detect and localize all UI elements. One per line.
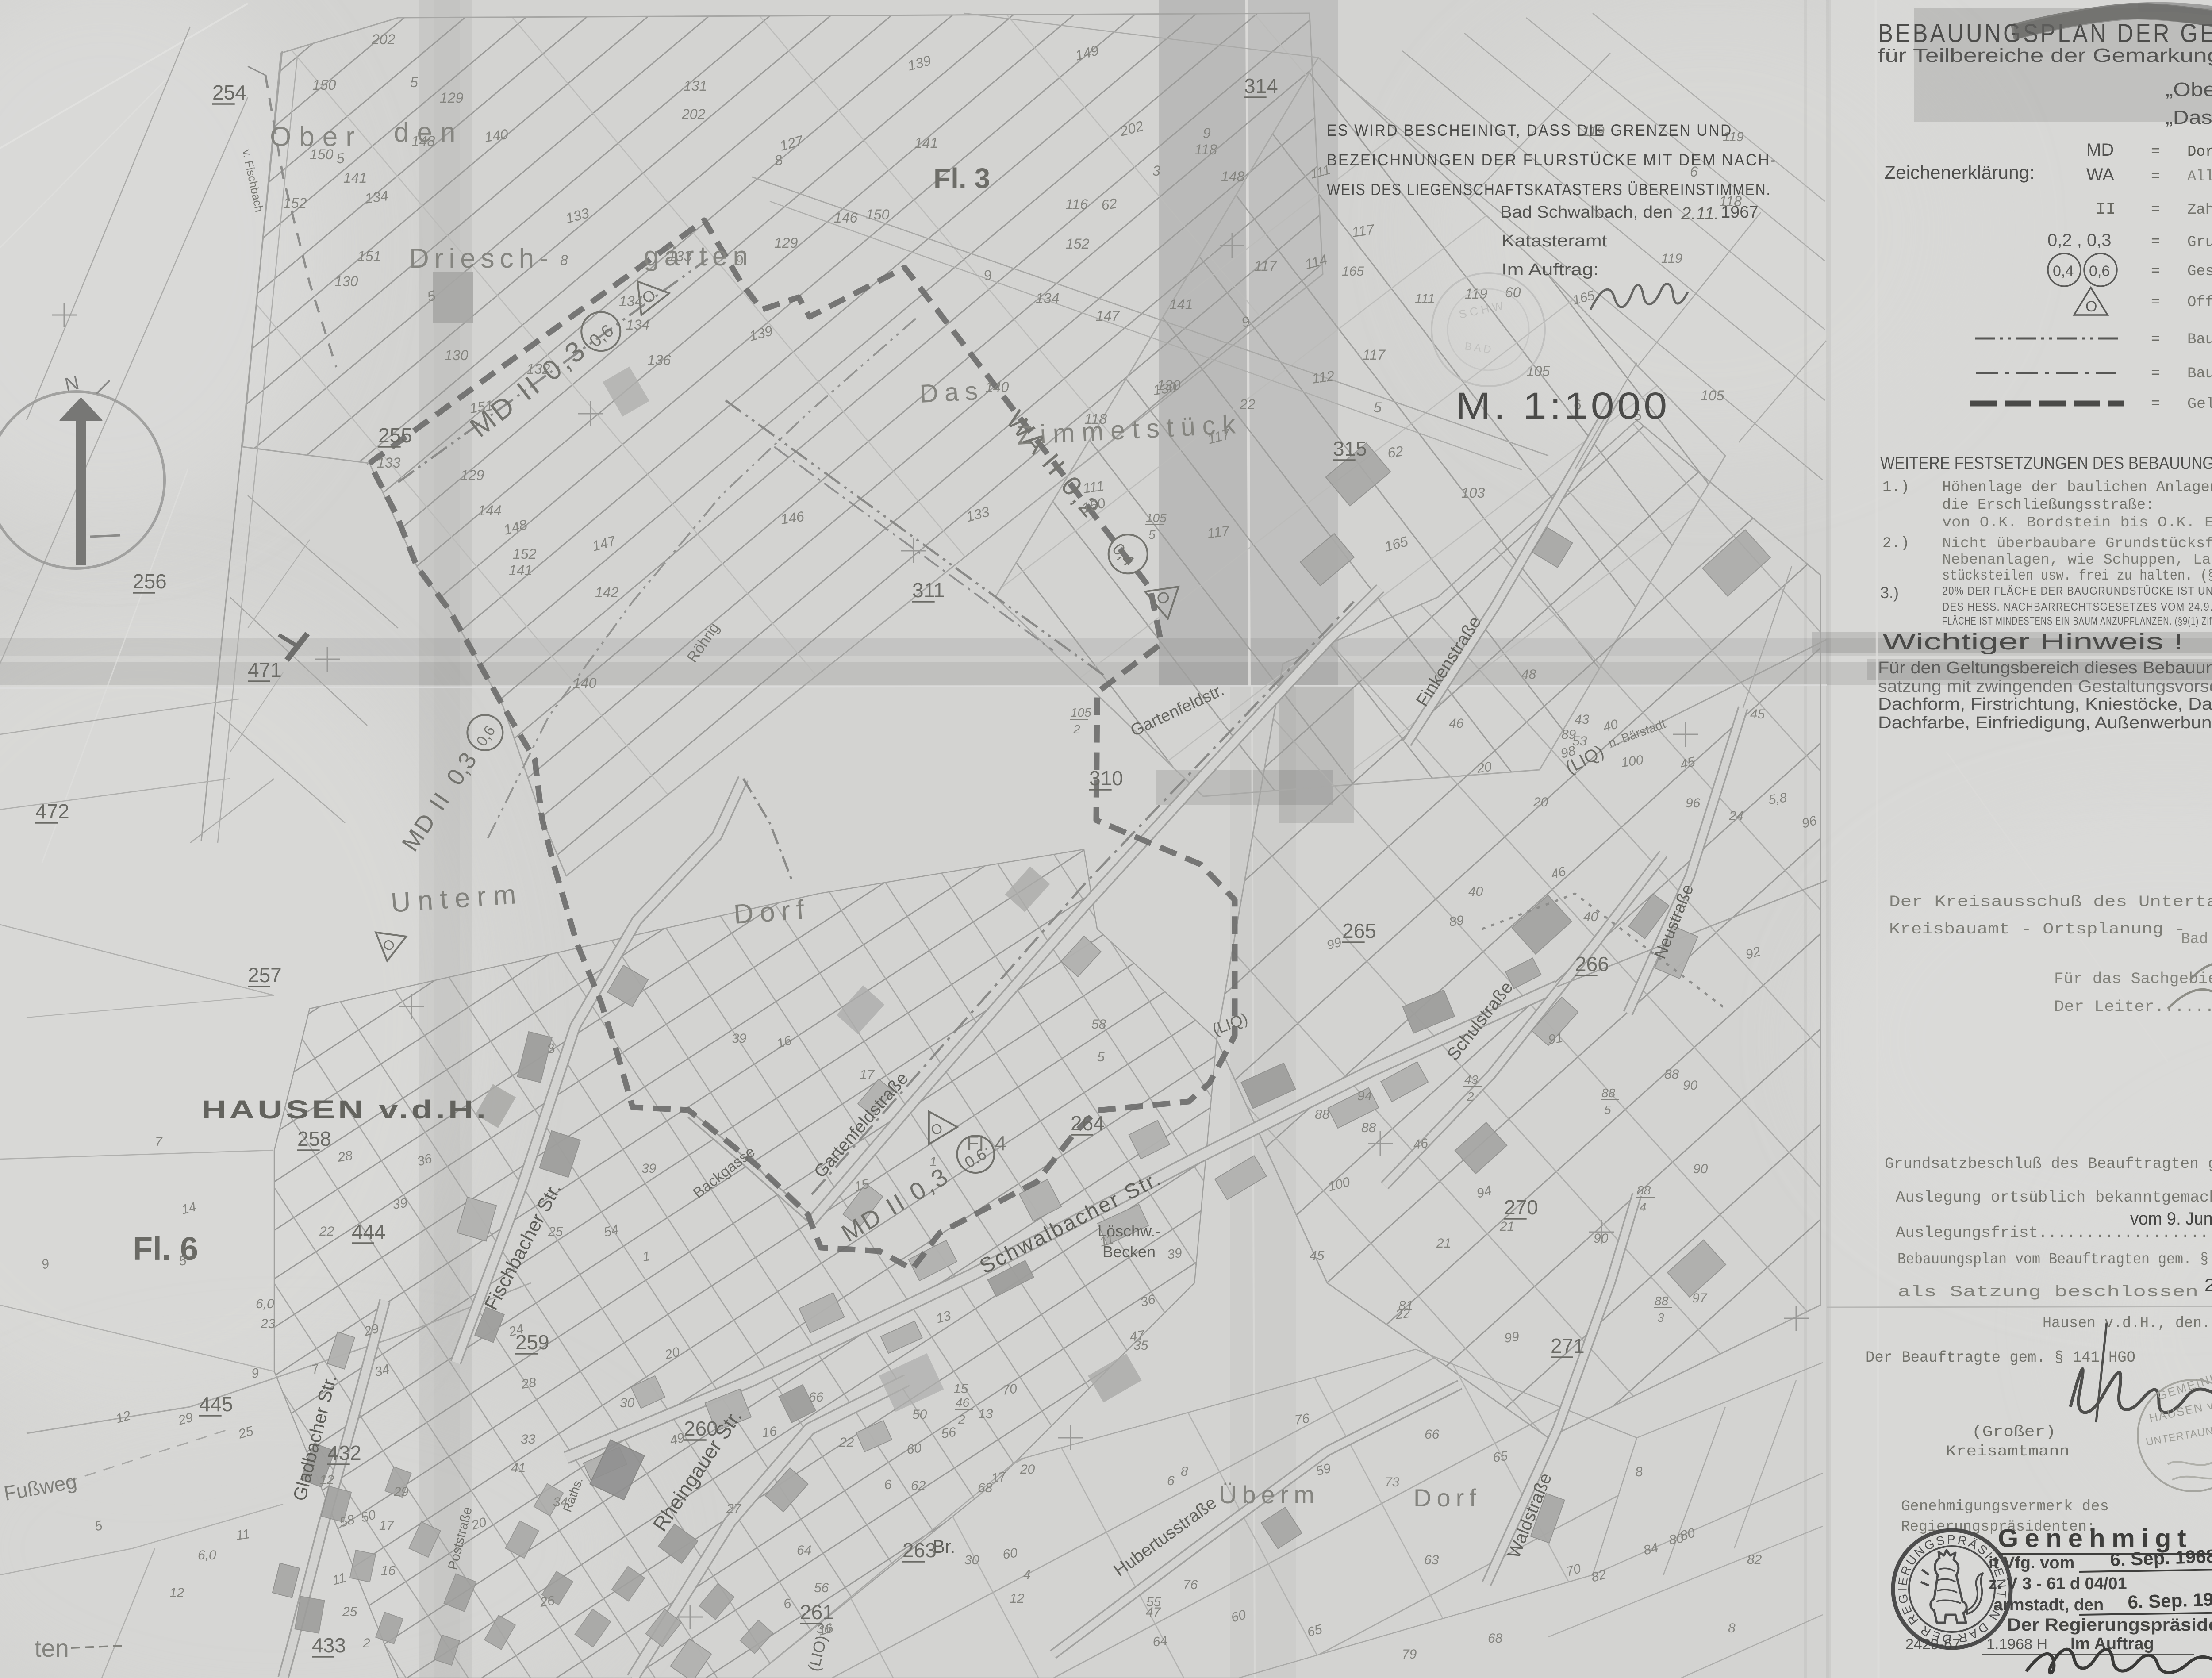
svg-text:MD: MD <box>2086 140 2114 160</box>
svg-text:Dorf: Dorf <box>1413 1484 1482 1512</box>
svg-text:6,0: 6,0 <box>256 1297 274 1311</box>
svg-text:Bad Schwalbach, den: Bad Schwalbach, den <box>1500 203 1673 222</box>
svg-text:3: 3 <box>1152 163 1160 179</box>
svg-text:255: 255 <box>378 424 412 447</box>
svg-text:202: 202 <box>681 106 706 122</box>
svg-text:30: 30 <box>620 1396 635 1410</box>
svg-text:Dorfgebiet: Dorfgebiet <box>2187 144 2212 161</box>
svg-text:=: = <box>2151 396 2160 413</box>
svg-text:die Erschließungsstraße:: die Erschließungsstraße: <box>1942 497 2154 513</box>
svg-text:Im Auftrag: Im Auftrag <box>2070 1635 2154 1653</box>
svg-text:76: 76 <box>1294 1411 1310 1428</box>
svg-text:66: 66 <box>809 1390 824 1405</box>
svg-text:311: 311 <box>912 579 945 602</box>
svg-text:66: 66 <box>1425 1427 1440 1442</box>
svg-text:146: 146 <box>834 210 858 226</box>
svg-text:134: 134 <box>626 317 649 333</box>
svg-text:als Satzung beschlossen . ..: als Satzung beschlossen . ..............… <box>1897 1283 2212 1301</box>
svg-text:134: 134 <box>1036 290 1059 306</box>
svg-text:62: 62 <box>1100 195 1118 213</box>
svg-text:310: 310 <box>1089 767 1123 790</box>
svg-text:20. JULI 1968: 20. JULI 1968 <box>2204 1275 2212 1295</box>
svg-text:58: 58 <box>1091 1017 1106 1032</box>
svg-text:134: 134 <box>364 188 389 207</box>
svg-text:5: 5 <box>410 74 418 90</box>
svg-text:17: 17 <box>990 1469 1007 1486</box>
svg-text:26: 26 <box>538 1594 556 1610</box>
svg-text:BEZEICHNUNGEN DER FLURSTÜCKE M: BEZEICHNUNGEN DER FLURSTÜCKE MIT DEM NAC… <box>1327 151 1777 169</box>
svg-text:6. Sep. 1968: 6. Sep. 1968 <box>2128 1588 2212 1613</box>
svg-text:=: = <box>2151 234 2160 251</box>
svg-text:„Das Zimmetstück“: „Das Zimmetstück“ <box>2166 107 2212 128</box>
svg-text:13: 13 <box>978 1407 993 1421</box>
svg-text:2: 2 <box>958 1413 965 1426</box>
svg-text:41: 41 <box>511 1461 526 1475</box>
svg-text:314: 314 <box>1244 74 1278 97</box>
svg-text:2: 2 <box>1073 722 1080 736</box>
svg-text:119: 119 <box>1661 251 1682 266</box>
svg-text:433: 433 <box>312 1634 346 1657</box>
svg-text:25: 25 <box>342 1605 357 1619</box>
svg-text:Genehmigungsvermerk des: Genehmigungsvermerk des <box>1901 1498 2109 1515</box>
svg-text:68: 68 <box>1488 1631 1503 1646</box>
svg-text:105: 105 <box>1071 706 1091 719</box>
svg-text:6: 6 <box>1167 1474 1175 1488</box>
svg-text:17: 17 <box>860 1067 875 1082</box>
svg-text:471: 471 <box>248 658 282 681</box>
svg-text:3.): 3.) <box>1880 584 1899 602</box>
svg-text:6. Sep. 1968: 6. Sep. 1968 <box>2110 1546 2212 1570</box>
svg-text:88: 88 <box>1601 1086 1616 1100</box>
svg-text:112: 112 <box>1311 368 1336 387</box>
svg-text:39: 39 <box>1166 1246 1183 1262</box>
svg-text:116: 116 <box>1065 196 1088 212</box>
svg-text:4: 4 <box>1640 1200 1647 1214</box>
svg-text:5: 5 <box>1097 1050 1105 1064</box>
svg-text:133: 133 <box>377 455 401 471</box>
svg-text:63: 63 <box>1424 1553 1439 1567</box>
svg-text:152: 152 <box>513 546 537 562</box>
svg-text:132: 132 <box>526 361 550 377</box>
svg-text:=: = <box>2151 144 2160 161</box>
svg-text:2.11.: 2.11. <box>1681 204 1719 223</box>
svg-text:25: 25 <box>548 1225 563 1239</box>
svg-text:129: 129 <box>774 235 798 251</box>
svg-text:151: 151 <box>357 248 381 264</box>
svg-text:65: 65 <box>1492 1449 1509 1465</box>
svg-text:Geschoßflächenzahl: Geschoßflächenzahl <box>2187 263 2212 280</box>
svg-text:2: 2 <box>1467 1090 1474 1103</box>
svg-text:129: 129 <box>461 467 484 483</box>
svg-text:117: 117 <box>1351 221 1376 240</box>
svg-text:WEIS DES LIEGENSCHAFTSKATASTER: WEIS DES LIEGENSCHAFTSKATASTERS ÜBEREINS… <box>1327 180 1771 199</box>
svg-text:40: 40 <box>1583 910 1598 924</box>
svg-text:0,6: 0,6 <box>2089 263 2110 280</box>
svg-text:Wichtiger Hinweis !: Wichtiger Hinweis ! <box>1882 629 2183 655</box>
svg-text:258: 258 <box>297 1127 331 1150</box>
svg-text:vom 9. Juni 1968 bis 11. Ju: vom 9. Juni 1968 bis 11. Juli 1968 <box>2130 1209 2212 1229</box>
svg-text:105: 105 <box>1146 511 1167 525</box>
svg-text:105: 105 <box>1701 388 1724 403</box>
svg-text:131: 131 <box>684 78 707 94</box>
svg-text:130: 130 <box>334 273 358 289</box>
svg-text:34: 34 <box>553 1495 568 1509</box>
svg-text:ten: ten <box>35 1634 69 1662</box>
svg-text:46: 46 <box>1412 1136 1429 1152</box>
svg-text:64: 64 <box>797 1543 811 1558</box>
svg-text:150: 150 <box>310 146 334 162</box>
svg-text:68: 68 <box>978 1481 993 1495</box>
svg-text:von O.K. Bordstein bis O.K. Er: von O.K. Bordstein bis O.K. Erdgeschoßfu… <box>1942 515 2212 531</box>
svg-text:23: 23 <box>260 1317 276 1331</box>
svg-text:64: 64 <box>1152 1633 1168 1650</box>
svg-text:Grundsatzbeschluß des Beauftra: Grundsatzbeschluß des Beauftragten gem.§… <box>1885 1155 2212 1173</box>
svg-text:130: 130 <box>445 347 469 363</box>
svg-text:89: 89 <box>1561 727 1576 742</box>
svg-text:17: 17 <box>379 1518 395 1533</box>
svg-text:16: 16 <box>761 1424 778 1440</box>
svg-text:33: 33 <box>521 1432 536 1447</box>
svg-text:22: 22 <box>319 1224 334 1239</box>
svg-text:105: 105 <box>1526 363 1550 379</box>
svg-text:28: 28 <box>336 1148 353 1165</box>
svg-text:81: 81 <box>1398 1298 1413 1313</box>
svg-text:117: 117 <box>1206 522 1231 541</box>
svg-text:133: 133 <box>668 248 692 264</box>
svg-text:15: 15 <box>953 1382 968 1396</box>
svg-text:266: 266 <box>1575 952 1609 975</box>
svg-text:141: 141 <box>914 135 938 151</box>
svg-text:Dorf: Dorf <box>733 894 811 930</box>
svg-text:136: 136 <box>647 352 671 368</box>
svg-text:89: 89 <box>1448 913 1465 929</box>
svg-text:Auslegung ortsüblich bekanntge: Auslegung ortsüblich bekanntgemacht.....… <box>1896 1189 2212 1206</box>
svg-text:Höhenlage der baulichen Anlage: Höhenlage der baulichen Anlagen (§ 9 (1)… <box>1942 479 2212 495</box>
svg-text:Der Beauftragte gem. § 141 HGO: Der Beauftragte gem. § 141 HGO <box>1866 1349 2135 1367</box>
svg-text:5: 5 <box>1374 399 1382 415</box>
svg-text:Baugrenze: Baugrenze <box>2187 365 2212 382</box>
svg-text:16: 16 <box>381 1563 396 1578</box>
svg-text:1.1968 H: 1.1968 H <box>1986 1636 2047 1653</box>
svg-text:144: 144 <box>478 503 501 518</box>
svg-text:20: 20 <box>1475 760 1493 776</box>
svg-text:Das: Das <box>919 376 984 408</box>
svg-text:11: 11 <box>235 1527 250 1543</box>
svg-text:46: 46 <box>1449 716 1464 731</box>
svg-text:29: 29 <box>393 1485 409 1499</box>
svg-text:261: 261 <box>800 1601 834 1624</box>
svg-text:40: 40 <box>1468 884 1483 899</box>
svg-text:263: 263 <box>902 1539 937 1562</box>
svg-text:Nicht überbaubare Grundstücksf: Nicht überbaubare Grundstücksflächen sin… <box>1942 535 2212 552</box>
svg-text:8: 8 <box>1181 1464 1188 1479</box>
svg-text:=: = <box>2151 263 2160 280</box>
svg-text:7: 7 <box>155 1135 163 1149</box>
svg-text:3: 3 <box>1657 1311 1664 1325</box>
svg-text:22: 22 <box>1239 396 1256 412</box>
svg-text:HAUSEN v.d.H.: HAUSEN v.d.H. <box>201 1095 489 1124</box>
svg-text:80: 80 <box>1668 1531 1685 1547</box>
svg-text:48: 48 <box>1521 667 1536 682</box>
svg-text:47: 47 <box>1129 1328 1146 1344</box>
svg-text:88: 88 <box>1315 1107 1330 1122</box>
svg-text:=: = <box>2151 202 2160 219</box>
svg-text:5: 5 <box>1604 1103 1611 1117</box>
svg-text:472: 472 <box>35 800 69 823</box>
svg-text:315: 315 <box>1333 437 1367 460</box>
svg-text:140: 140 <box>484 126 509 145</box>
svg-text:62: 62 <box>1386 443 1404 461</box>
svg-text:Der Kreisausschuß des Untertau: Der Kreisausschuß des Untertaunuskreises <box>1889 893 2212 911</box>
svg-text:146: 146 <box>780 508 805 527</box>
svg-text:73: 73 <box>1385 1475 1400 1490</box>
svg-text:1: 1 <box>929 1155 937 1169</box>
svg-text:stücksteilen usw. frei zu halt: stücksteilen usw. frei zu halten. (§23 (… <box>1942 568 2212 584</box>
svg-text:2.): 2.) <box>1882 535 1909 552</box>
svg-text:271: 271 <box>1551 1334 1585 1357</box>
svg-text:134: 134 <box>619 293 642 309</box>
svg-text:Dachfarbe, Einfriedigung, Auße: Dachfarbe, Einfriedigung, Außenwerbung. <box>1878 714 2212 732</box>
svg-text:148: 148 <box>411 133 435 149</box>
svg-text:20: 20 <box>1020 1462 1035 1477</box>
svg-text:130: 130 <box>1152 379 1178 398</box>
svg-text:432: 432 <box>327 1441 361 1464</box>
svg-text:90: 90 <box>1594 1231 1609 1246</box>
svg-text:WA: WA <box>2086 165 2114 184</box>
svg-text:DES HESS. NACHBARRECHTSGESETZE: DES HESS. NACHBARRECHTSGESETZES VOM 24.9… <box>1942 601 2212 613</box>
svg-text:Fl. 3: Fl. 3 <box>933 162 990 194</box>
svg-text:79: 79 <box>1402 1647 1417 1662</box>
svg-text:12: 12 <box>319 1473 334 1487</box>
svg-text:Der Leiter....................: Der Leiter.....................Kreisober… <box>2054 998 2212 1016</box>
svg-text:118: 118 <box>1194 142 1217 157</box>
svg-text:24: 24 <box>1728 809 1743 823</box>
svg-text:Kreisamtmann: Kreisamtmann <box>1946 1444 2070 1460</box>
svg-text:28: 28 <box>520 1375 537 1392</box>
svg-text:111: 111 <box>1082 478 1105 496</box>
svg-text:Für das Sachgebiet............: Für das Sachgebiet...............Kreisba… <box>2054 970 2212 988</box>
svg-text:151: 151 <box>469 397 494 416</box>
svg-text:99: 99 <box>1503 1329 1520 1346</box>
svg-text:90: 90 <box>1683 1078 1698 1093</box>
svg-text:45: 45 <box>1750 707 1765 722</box>
svg-text:Hausen v.d.H., den............: Hausen v.d.H., den.....................1… <box>2043 1314 2212 1332</box>
svg-text:Nebenanlagen, wie Schuppen, La: Nebenanlagen, wie Schuppen, Lagerräume, … <box>1942 552 2212 568</box>
svg-text:148: 148 <box>1221 169 1245 184</box>
svg-text:90: 90 <box>1693 1162 1708 1176</box>
svg-text:22: 22 <box>839 1435 854 1450</box>
svg-text:Grundflächenzahl: Grundflächenzahl <box>2187 234 2212 251</box>
svg-text:50: 50 <box>912 1407 927 1422</box>
svg-text:140: 140 <box>573 675 597 691</box>
svg-text:30: 30 <box>964 1553 979 1567</box>
svg-text:satzung mit zwingenden Gestalt: satzung mit zwingenden Gestaltungsvorsch… <box>1878 677 2212 696</box>
svg-text:5: 5 <box>1148 528 1156 541</box>
svg-text:88: 88 <box>1361 1121 1376 1135</box>
svg-text:150: 150 <box>866 207 890 223</box>
svg-text:140: 140 <box>985 379 1009 395</box>
svg-text:118: 118 <box>1084 411 1107 427</box>
svg-text:444: 444 <box>352 1220 386 1243</box>
svg-text:Offene Bauweise (nur Einzel-u.: Offene Bauweise (nur Einzel-u.Doppel <box>2187 294 2212 311</box>
svg-text:76: 76 <box>1183 1578 1198 1592</box>
svg-text:260: 260 <box>684 1417 718 1440</box>
svg-text:ES WIRD BESCHEINIGT, DASS DIE: ES WIRD BESCHEINIGT, DASS DIE GRENZEN UN… <box>1327 121 1732 139</box>
svg-text:62: 62 <box>911 1478 926 1493</box>
svg-text:254: 254 <box>212 81 246 104</box>
svg-text:88: 88 <box>1637 1183 1651 1197</box>
svg-text:56: 56 <box>814 1581 829 1595</box>
svg-text:202: 202 <box>371 31 396 47</box>
svg-text:II: II <box>2096 200 2116 219</box>
svg-text:60: 60 <box>906 1441 922 1457</box>
svg-text:1967: 1967 <box>1721 203 1759 222</box>
svg-text:Dachform, Firstrichtung, Knies: Dachform, Firstrichtung, Kniestöcke, Dac… <box>1878 695 2212 714</box>
svg-text:141: 141 <box>343 170 367 186</box>
svg-text:111: 111 <box>1415 292 1435 306</box>
svg-text:82: 82 <box>1747 1552 1762 1567</box>
svg-text:Allgemeines Wohngebiet: Allgemeines Wohngebiet <box>2187 169 2212 185</box>
svg-text:141: 141 <box>1169 296 1193 312</box>
svg-text:FLÄCHE IST MINDESTENS EIN BAUM: FLÄCHE IST MINDESTENS EIN BAUM ANZUPFLAN… <box>1942 615 2212 627</box>
svg-text:88: 88 <box>1664 1067 1679 1082</box>
svg-text:97: 97 <box>1692 1291 1708 1306</box>
svg-text:8: 8 <box>560 252 568 268</box>
svg-text:117: 117 <box>1254 258 1277 274</box>
svg-text:257: 257 <box>248 964 282 987</box>
svg-text:20% DER FLÄCHE DER BAUGRUNDSTÜ: 20% DER FLÄCHE DER BAUGRUNDSTÜCKE IST UN… <box>1942 585 2212 597</box>
svg-text:0,4: 0,4 <box>2053 263 2074 280</box>
svg-text:91: 91 <box>1547 1031 1564 1047</box>
svg-text:Fl. 6: Fl. 6 <box>133 1230 198 1267</box>
svg-text:165: 165 <box>1342 264 1364 279</box>
svg-text:12: 12 <box>1010 1591 1025 1606</box>
svg-text:21: 21 <box>1436 1236 1451 1251</box>
svg-text:9: 9 <box>1203 125 1211 141</box>
svg-text:142: 142 <box>595 584 619 600</box>
svg-text:103: 103 <box>1461 485 1485 501</box>
svg-text:Im Auftrag:: Im Auftrag: <box>1502 261 1599 279</box>
svg-text:152: 152 <box>1066 236 1090 252</box>
svg-text:445: 445 <box>199 1393 233 1416</box>
svg-text:Baulinie: Baulinie <box>2187 331 2212 348</box>
svg-text:256: 256 <box>133 570 167 593</box>
svg-text:6,0: 6,0 <box>198 1548 216 1563</box>
svg-text:Der Regierungspräsident: Der Regierungspräsident <box>2007 1615 2212 1635</box>
svg-text:=: = <box>2151 331 2160 348</box>
svg-text:39: 39 <box>641 1161 657 1176</box>
svg-text:46: 46 <box>956 1396 970 1409</box>
svg-text:21: 21 <box>1499 1219 1514 1234</box>
svg-text:39: 39 <box>732 1031 747 1046</box>
svg-text:5,8: 5,8 <box>1767 790 1788 807</box>
svg-text:4: 4 <box>1023 1567 1031 1582</box>
svg-text:150: 150 <box>312 77 336 93</box>
svg-text:Zahl der Vollgeschosse (Höchst: Zahl der Vollgeschosse (Höchstgrenze <box>2187 202 2212 219</box>
svg-text:264: 264 <box>1071 1112 1105 1135</box>
svg-text:1.): 1.) <box>1882 479 1909 496</box>
svg-text:94: 94 <box>1357 1089 1372 1103</box>
svg-text:96: 96 <box>1686 796 1701 810</box>
svg-text:=: = <box>2151 365 2160 382</box>
svg-text:„Ober den Drieschgärten“: „Ober den Drieschgärten“ <box>2166 79 2212 100</box>
svg-text:70: 70 <box>1001 1382 1018 1398</box>
svg-text:45: 45 <box>1310 1248 1325 1263</box>
svg-text:Bebauungsplan vom Beauftragten: Bebauungsplan vom Beauftragten gem. § 14… <box>1897 1251 2212 1268</box>
svg-text:Für den Geltungsbereich dieses: Für den Geltungsbereich dieses Bebauungs… <box>1878 659 2212 677</box>
svg-text:Driesch-: Driesch- <box>409 243 554 274</box>
svg-text:M. 1:1000: M. 1:1000 <box>1455 385 1670 426</box>
svg-text:43: 43 <box>1575 712 1590 727</box>
svg-text:2: 2 <box>362 1636 370 1651</box>
svg-text:Geltungsbereich des Bebauungsp: Geltungsbereich des Bebauungsplanes <box>2187 396 2212 413</box>
svg-text:88: 88 <box>1655 1294 1669 1308</box>
svg-text:Überm: Überm <box>1219 1481 1320 1509</box>
svg-text:Katasteramt: Katasteramt <box>1502 232 1608 250</box>
svg-text:WEITERE FESTSETZUNGEN DES B: WEITERE FESTSETZUNGEN DES BEBAUUNGSPLANE… <box>1880 453 2212 473</box>
svg-text:für Teilbereiche der Gemarkung: für Teilbereiche der Gemarkung: <box>1878 45 2212 66</box>
svg-text:(Großer): (Großer) <box>1972 1424 2056 1441</box>
svg-text:0,2 , 0,3: 0,2 , 0,3 <box>2047 230 2112 250</box>
svg-text:129: 129 <box>440 90 464 106</box>
svg-text:265: 265 <box>1342 919 1376 942</box>
svg-text:=: = <box>2151 294 2160 311</box>
svg-text:20: 20 <box>1533 795 1548 810</box>
svg-text:141: 141 <box>509 562 532 578</box>
svg-text:147: 147 <box>1096 308 1120 324</box>
svg-text:117: 117 <box>1363 347 1386 363</box>
svg-text:=: = <box>2151 169 2160 185</box>
svg-text:152: 152 <box>283 195 307 211</box>
svg-text:O: O <box>2085 298 2097 315</box>
svg-text:56: 56 <box>940 1425 957 1441</box>
svg-text:60: 60 <box>1002 1546 1018 1562</box>
svg-text:270: 270 <box>1504 1196 1538 1219</box>
svg-text:39: 39 <box>392 1196 408 1212</box>
svg-text:27: 27 <box>726 1501 742 1516</box>
svg-text:Bad Schwalbach, den 14. Dezemb: Bad Schwalbach, den 14. Dezember 1967 <box>2181 930 2212 948</box>
svg-text:Zeichenerklärung:: Zeichenerklärung: <box>1884 162 2035 183</box>
svg-text:43: 43 <box>1464 1073 1479 1087</box>
svg-text:12: 12 <box>169 1586 184 1600</box>
svg-text:8: 8 <box>1728 1621 1736 1636</box>
svg-text:100: 100 <box>1620 753 1644 770</box>
svg-text:Kreisbauamt - Ortsplanung -: Kreisbauamt - Ortsplanung - <box>1889 921 2185 938</box>
svg-text:55: 55 <box>1146 1595 1161 1609</box>
